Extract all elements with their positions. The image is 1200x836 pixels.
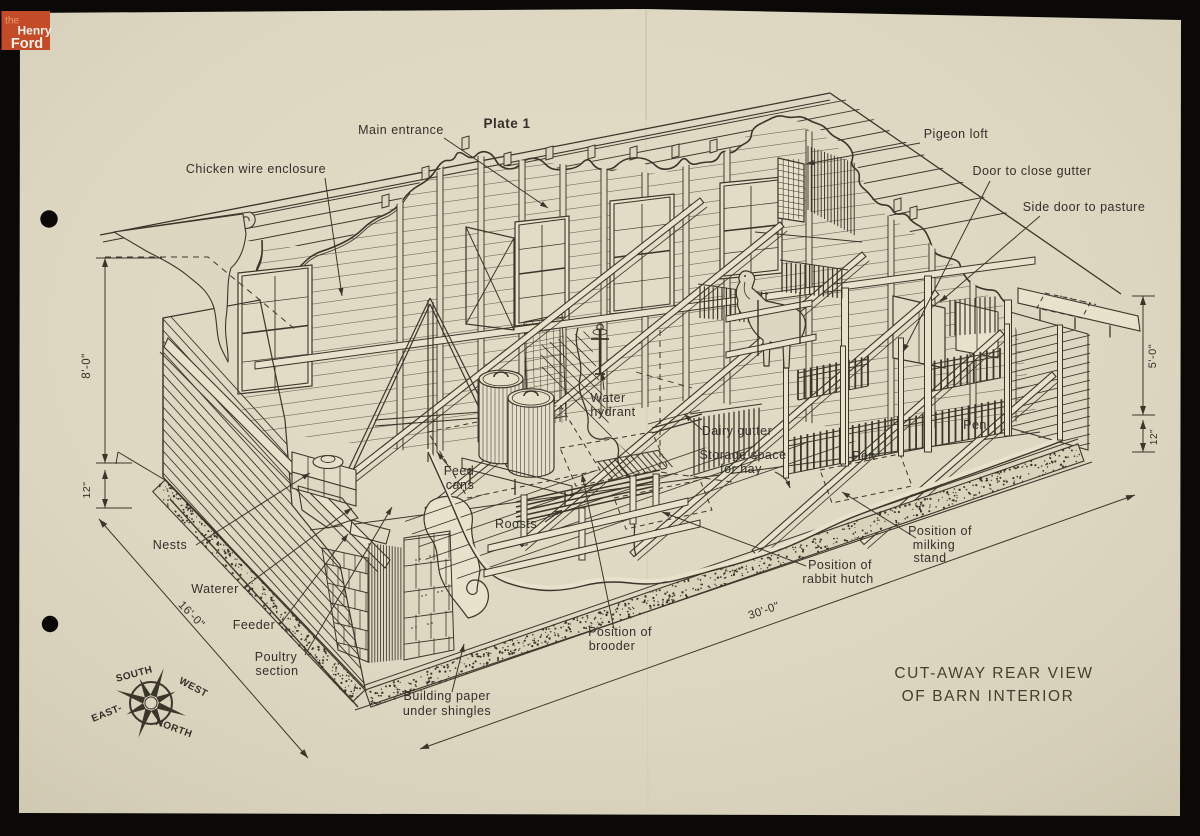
svg-text:Pigeon loft: Pigeon loft: [924, 127, 989, 141]
svg-text:Nests: Nests: [153, 538, 187, 552]
svg-text:hydrant: hydrant: [590, 405, 635, 419]
svg-text:Waterer: Waterer: [191, 582, 239, 596]
svg-text:Plate 1: Plate 1: [483, 116, 530, 131]
svg-text:Pen: Pen: [852, 449, 876, 463]
svg-text:Door to close gutter: Door to close gutter: [972, 164, 1091, 178]
svg-text:Position of: Position of: [808, 558, 872, 572]
svg-text:5'-0": 5'-0": [1147, 344, 1159, 368]
svg-text:rabbit hutch: rabbit hutch: [802, 572, 873, 586]
svg-text:CUT-AWAY REAR VIEW: CUT-AWAY REAR VIEW: [894, 665, 1093, 682]
svg-text:cans: cans: [446, 478, 474, 492]
svg-text:Feeder: Feeder: [233, 618, 276, 632]
svg-text:Position of: Position of: [588, 625, 652, 639]
svg-text:12": 12": [81, 482, 93, 499]
svg-text:Water: Water: [590, 391, 625, 405]
svg-text:Poultry: Poultry: [255, 650, 298, 664]
svg-text:Storage space: Storage space: [699, 448, 786, 462]
svg-text:Position of: Position of: [908, 524, 972, 538]
svg-text:Roosts: Roosts: [495, 517, 537, 531]
svg-text:8'-0": 8'-0": [81, 353, 93, 378]
svg-text:for hay: for hay: [720, 462, 762, 476]
svg-text:Main entrance: Main entrance: [358, 123, 444, 137]
svg-text:Pen: Pen: [963, 418, 987, 432]
svg-text:Building paper: Building paper: [404, 689, 491, 703]
svg-text:milking: milking: [913, 538, 955, 552]
svg-text:Chicken wire enclosure: Chicken wire enclosure: [186, 162, 326, 176]
svg-text:brooder: brooder: [589, 639, 636, 653]
svg-text:OF BARN INTERIOR: OF BARN INTERIOR: [902, 688, 1075, 705]
svg-text:12": 12": [1149, 429, 1160, 445]
svg-text:Side door to pasture: Side door to pasture: [1023, 200, 1146, 214]
svg-text:Dairy gutter: Dairy gutter: [702, 424, 773, 438]
svg-text:stand: stand: [913, 551, 946, 565]
svg-text:section: section: [255, 664, 298, 678]
svg-text:Ford: Ford: [11, 36, 43, 52]
svg-text:under shingles: under shingles: [403, 704, 491, 718]
